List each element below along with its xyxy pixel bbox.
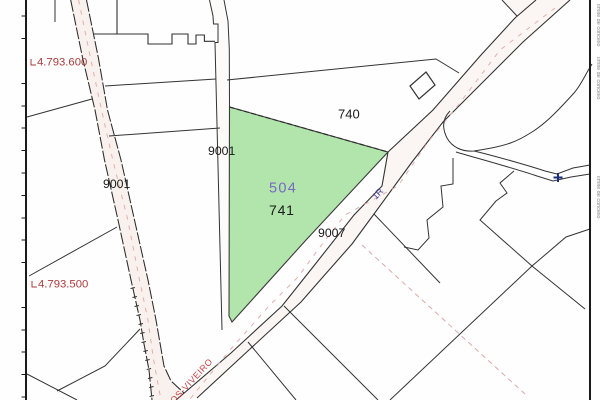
- svg-text:9001: 9001: [208, 144, 236, 158]
- svg-text:límite de concello: límite de concello: [595, 176, 600, 219]
- svg-text:4.793.500: 4.793.500: [38, 279, 88, 291]
- svg-text:4.793.600: 4.793.600: [37, 57, 87, 69]
- svg-text:741: 741: [269, 202, 295, 218]
- svg-text:límite de concello: límite de concello: [595, 57, 600, 100]
- svg-text:740: 740: [338, 107, 360, 122]
- svg-text:9007: 9007: [318, 226, 346, 240]
- svg-text:504: 504: [269, 181, 297, 197]
- svg-text:límite de concello: límite de concello: [595, 4, 600, 47]
- svg-text:9001: 9001: [103, 177, 131, 191]
